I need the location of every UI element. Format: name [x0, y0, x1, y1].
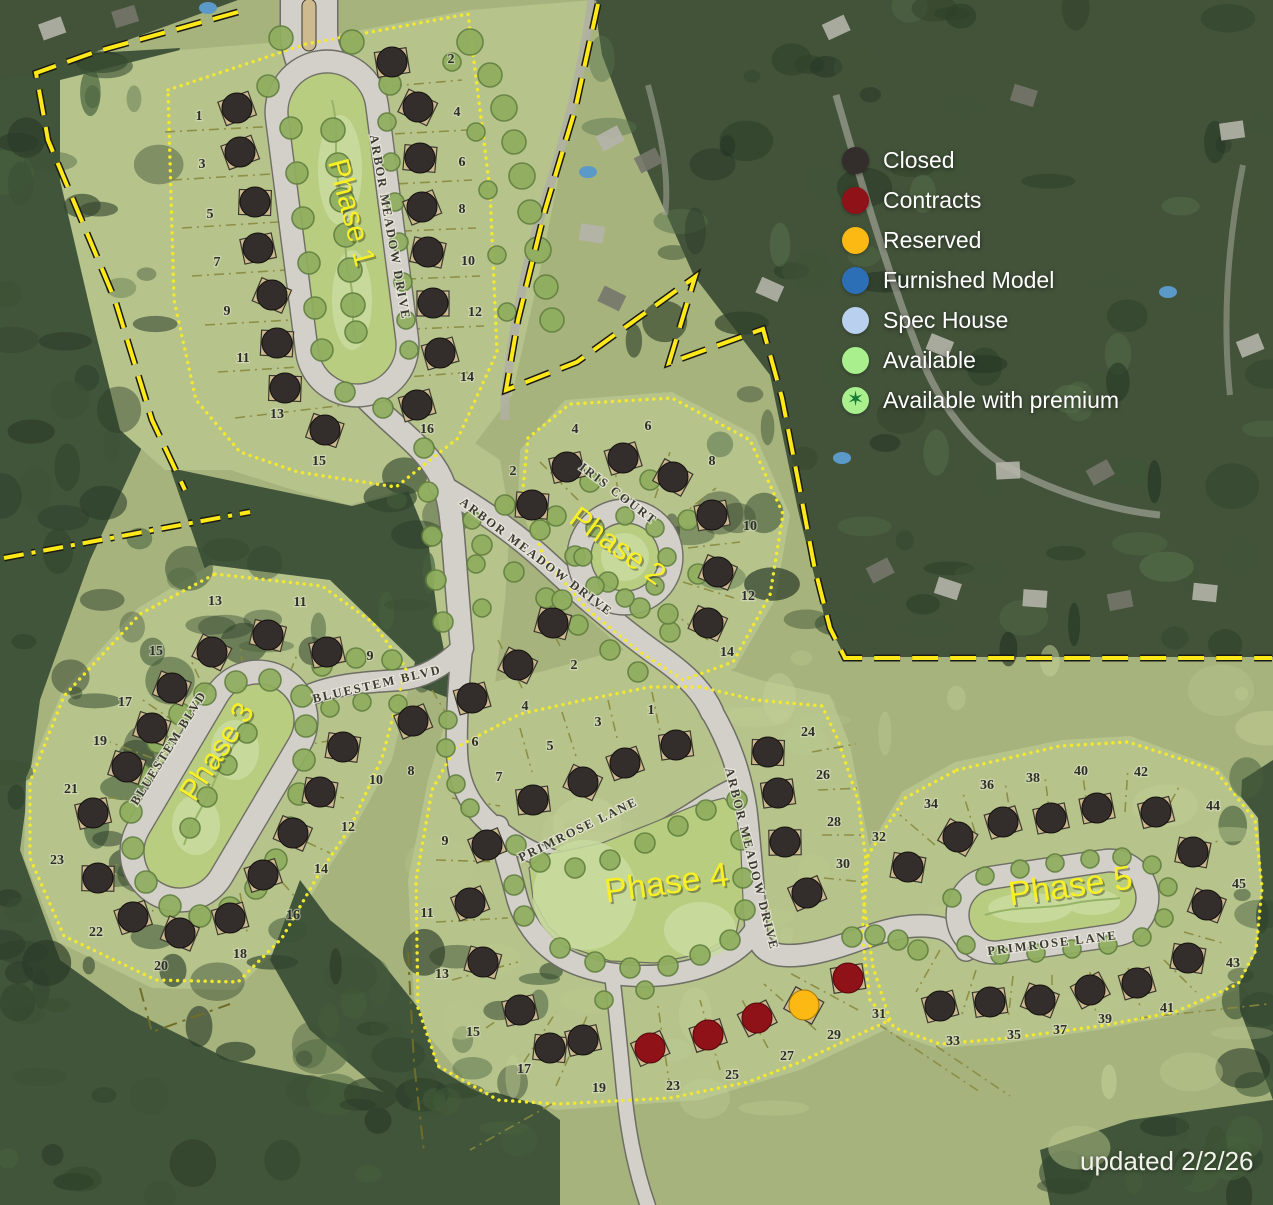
lot-status-dot — [278, 818, 308, 848]
lot-number: 15 — [312, 454, 326, 469]
texture-blob — [370, 1021, 404, 1037]
tree-icon — [382, 650, 402, 670]
tree-icon — [957, 936, 975, 954]
texture-blob — [1212, 285, 1255, 327]
lot-marker-p1-2 — [374, 47, 410, 77]
tree-icon — [574, 548, 592, 566]
lot-number: 23 — [666, 1079, 680, 1094]
lot-number: 10 — [369, 773, 383, 788]
lot-status-dot — [568, 767, 598, 797]
tree-icon — [1155, 909, 1173, 927]
texture-blob — [1160, 1052, 1223, 1091]
lot-number: 9 — [224, 304, 231, 319]
pool — [199, 2, 217, 14]
texture-blob — [12, 1068, 67, 1086]
legend: ClosedContractsReservedFurnished ModelSp… — [842, 147, 1119, 414]
lot-status-dot — [975, 987, 1005, 1017]
lot-status-dot — [1122, 968, 1152, 998]
lot-status-dot — [407, 192, 437, 222]
texture-blob — [1205, 463, 1259, 509]
lot-status-dot — [742, 1003, 772, 1033]
legend-item: Reserved — [842, 227, 1119, 254]
lot-status-dot — [248, 860, 278, 890]
lot-number: 20 — [154, 959, 168, 974]
tree-icon — [461, 799, 479, 817]
lot-marker-p2-2 — [515, 490, 549, 520]
lot-marker-p3-23 — [82, 863, 114, 893]
tree-icon — [908, 940, 928, 960]
lot-status-dot — [988, 807, 1018, 837]
status-dot-icon — [842, 267, 869, 294]
lot-number: 13 — [270, 407, 284, 422]
tree-icon — [293, 749, 315, 771]
texture-blob — [1046, 546, 1086, 561]
lot-status-dot — [157, 673, 187, 703]
texture-blob — [18, 468, 52, 512]
lot-number: 14 — [460, 370, 474, 385]
lot-status-dot — [608, 443, 638, 473]
tree-icon — [1159, 878, 1177, 896]
lot-number: 42 — [1134, 765, 1148, 780]
tree-icon — [502, 130, 526, 154]
tree-icon — [540, 308, 564, 332]
lot-number: 1 — [648, 703, 655, 718]
tree-icon — [400, 341, 418, 359]
lot-status-dot — [402, 390, 432, 420]
lot-status-dot — [405, 143, 435, 173]
lot-status-dot — [257, 280, 287, 310]
lot-number: 7 — [496, 770, 503, 785]
texture-blob — [744, 70, 761, 83]
texture-blob — [906, 594, 940, 615]
lot-status-dot — [305, 777, 335, 807]
texture-blob — [55, 444, 80, 491]
lot-status-dot — [1173, 943, 1203, 973]
lot-status-dot — [1075, 975, 1105, 1005]
lot-number: 11 — [236, 351, 249, 366]
lot-status-dot — [943, 822, 973, 852]
lot-marker-p5-44 — [1175, 837, 1211, 868]
tree-icon — [668, 816, 688, 836]
lot-status-dot — [222, 93, 252, 123]
texture-blob — [97, 386, 141, 433]
lot-status-dot — [310, 415, 340, 445]
lot-number: 32 — [872, 830, 886, 845]
texture-blob — [1201, 4, 1255, 32]
lot-status-dot — [789, 990, 819, 1020]
texture-blob — [658, 245, 689, 260]
lot-status-dot — [1192, 890, 1222, 920]
texture-blob — [371, 1037, 424, 1072]
texture-blob — [737, 386, 764, 402]
lot-status-dot — [535, 1033, 565, 1063]
texture-blob — [1101, 1064, 1116, 1099]
tree-icon — [439, 711, 457, 729]
legend-item-label: Available — [883, 347, 976, 374]
tree-icon — [518, 200, 542, 224]
legend-item-label: Furnished Model — [883, 267, 1054, 294]
tree-icon — [552, 590, 572, 610]
texture-blob — [0, 984, 35, 1022]
texture-blob — [387, 492, 407, 508]
lot-marker-p4-31 — [830, 963, 866, 993]
tree-icon — [291, 685, 313, 707]
aerial-house — [1219, 120, 1245, 140]
texture-blob — [44, 998, 71, 1012]
aerial-house — [1192, 583, 1218, 602]
tree-icon — [447, 775, 465, 793]
texture-blob — [1161, 626, 1188, 649]
tree-icon — [467, 123, 485, 141]
updated-date: updated 2/2/26 — [1080, 1146, 1254, 1177]
lot-number: 1 — [196, 109, 203, 124]
lot-status-dot — [472, 830, 502, 860]
lot-marker-p1-13 — [269, 373, 302, 403]
texture-blob — [1256, 899, 1268, 933]
texture-blob — [1112, 532, 1167, 555]
lot-marker-p4-28 — [769, 827, 801, 857]
lot-status-dot — [893, 852, 923, 882]
lot-number: 22 — [89, 925, 103, 940]
texture-blob — [739, 1101, 810, 1116]
tree-icon — [585, 952, 605, 972]
lot-number: 14 — [720, 645, 734, 660]
lot-number: 4 — [572, 422, 579, 437]
legend-item: Furnished Model — [842, 267, 1119, 294]
lot-status-dot — [78, 798, 108, 828]
lot-marker-p1-12 — [417, 288, 449, 318]
lot-number: 8 — [459, 202, 466, 217]
texture-blob — [83, 956, 95, 974]
tree-icon — [321, 118, 345, 142]
lot-marker-p4-26 — [760, 778, 795, 808]
texture-blob — [133, 316, 178, 332]
tree-icon — [842, 927, 862, 947]
lot-number: 43 — [1226, 956, 1240, 971]
texture-blob — [1211, 1027, 1273, 1040]
tree-icon — [467, 555, 485, 573]
texture-blob — [453, 1057, 493, 1080]
texture-blob — [1188, 293, 1213, 314]
lot-marker-p3-10 — [325, 732, 361, 762]
tree-icon — [426, 570, 446, 590]
tree-icon — [658, 604, 678, 624]
lot-status-dot — [610, 748, 640, 778]
texture-blob — [91, 1087, 116, 1103]
lot-number: 16 — [420, 422, 434, 437]
tree-icon — [565, 858, 585, 878]
texture-blob — [501, 1124, 537, 1157]
lot-status-dot — [1178, 837, 1208, 867]
legend-item: ✶Available with premium — [842, 387, 1119, 414]
tree-icon — [534, 275, 558, 299]
lot-marker-p4-1 — [658, 730, 693, 760]
tree-icon — [122, 837, 144, 859]
tree-icon — [473, 599, 491, 617]
lot-marker-p4-17 — [533, 1033, 567, 1063]
tree-icon — [257, 75, 279, 97]
texture-blob — [330, 948, 342, 985]
lot-number: 27 — [780, 1049, 794, 1064]
tree-icon — [660, 622, 680, 642]
lot-status-dot — [925, 991, 955, 1021]
lot-number: 36 — [980, 778, 994, 793]
legend-item-label: Closed — [883, 147, 955, 174]
texture-blob — [942, 96, 983, 115]
texture-blob — [5, 962, 34, 984]
legend-item: Contracts — [842, 187, 1119, 214]
lot-number: 17 — [118, 695, 132, 710]
lot-number: 41 — [1160, 1001, 1174, 1016]
star-glyph: ✶ — [847, 389, 865, 410]
tree-icon — [472, 535, 492, 555]
lot-number: 2 — [448, 52, 455, 67]
tree-icon — [378, 113, 396, 131]
lot-number: 37 — [1053, 1023, 1067, 1038]
texture-blob — [771, 43, 811, 75]
legend-item-label: Contracts — [883, 187, 981, 214]
tree-icon — [498, 303, 516, 321]
tree-icon — [495, 495, 515, 515]
tree-icon — [437, 739, 455, 757]
texture-blob — [216, 1042, 256, 1062]
texture-blob — [690, 148, 736, 180]
tree-icon — [690, 945, 710, 965]
tree-icon — [304, 297, 326, 319]
lot-number: 39 — [1098, 1012, 1112, 1027]
lot-status-dot — [505, 995, 535, 1025]
lot-status-dot — [661, 730, 691, 760]
tree-icon — [735, 900, 755, 920]
tree-icon — [341, 293, 365, 317]
tree-icon — [340, 30, 364, 54]
texture-blob — [781, 927, 794, 944]
texture-blob — [433, 1087, 461, 1114]
tree-icon — [335, 382, 355, 402]
lot-number: 38 — [1026, 771, 1040, 786]
tree-icon — [225, 671, 247, 693]
tree-icon — [616, 589, 634, 607]
lot-marker-p2-10 — [694, 500, 730, 531]
texture-blob — [186, 1006, 213, 1047]
texture-blob — [12, 634, 37, 649]
texture-blob — [815, 611, 865, 636]
texture-blob — [127, 85, 142, 112]
texture-blob — [378, 592, 394, 631]
lot-marker-p5-40 — [1079, 793, 1115, 824]
tree-icon — [269, 26, 293, 50]
tree-icon — [280, 117, 302, 139]
texture-blob — [365, 1107, 392, 1133]
tree-icon — [491, 95, 517, 121]
tree-icon — [345, 321, 367, 343]
texture-blob — [49, 381, 89, 419]
lot-status-dot — [538, 608, 568, 638]
tree-icon — [346, 648, 366, 668]
texture-blob — [119, 612, 145, 643]
texture-blob — [955, 563, 1011, 582]
texture-blob — [39, 332, 92, 350]
lot-status-dot — [398, 706, 428, 736]
tree-icon — [373, 398, 393, 418]
lot-status-dot — [468, 947, 498, 977]
texture-blob — [355, 1165, 382, 1183]
tree-icon — [1143, 856, 1161, 874]
pool — [579, 166, 597, 178]
legend-item: Spec House — [842, 307, 1119, 334]
lot-number: 9 — [442, 834, 449, 849]
lot-status-dot — [503, 650, 533, 680]
texture-blob — [62, 1167, 102, 1192]
texture-blob — [1227, 538, 1253, 577]
texture-blob — [837, 516, 891, 536]
lot-number: 24 — [801, 725, 815, 740]
tree-icon — [418, 482, 438, 502]
lot-status-dot — [1082, 793, 1112, 823]
tree-icon — [422, 526, 442, 546]
lot-number: 31 — [872, 1007, 886, 1022]
lot-number: 12 — [741, 589, 755, 604]
lot-status-dot — [693, 608, 723, 638]
lot-status-dot — [112, 752, 142, 782]
texture-blob — [80, 589, 125, 611]
tree-icon — [696, 800, 716, 820]
lot-number: 15 — [466, 1025, 480, 1040]
legend-item: Closed — [842, 147, 1119, 174]
tree-icon — [504, 875, 524, 895]
texture-blob — [1176, 1113, 1189, 1141]
lot-number: 2 — [571, 658, 578, 673]
lot-status-dot — [312, 637, 342, 667]
tree-icon — [530, 520, 550, 540]
lot-number: 18 — [233, 947, 247, 962]
texture-blob — [1229, 757, 1263, 798]
tree-icon — [259, 669, 281, 691]
lot-status-dot — [457, 683, 487, 713]
lot-number: 15 — [149, 644, 163, 659]
texture-blob — [134, 145, 184, 185]
tree-icon — [976, 867, 994, 885]
lot-number: 6 — [645, 419, 652, 434]
texture-blob — [870, 434, 901, 452]
lot-status-dot — [270, 373, 300, 403]
tree-icon — [943, 889, 961, 907]
tree-icon — [286, 162, 308, 184]
lot-number: 10 — [743, 519, 757, 534]
texture-blob — [42, 1144, 64, 1166]
lot-marker-p5-35 — [972, 987, 1008, 1017]
aerial-house — [1022, 589, 1047, 608]
lot-status-dot — [455, 888, 485, 918]
lot-number: 3 — [199, 157, 206, 172]
lot-status-dot — [635, 1033, 665, 1063]
texture-blob — [8, 419, 55, 443]
lot-number: 45 — [1232, 877, 1246, 892]
tree-icon — [550, 938, 570, 958]
tree-icon — [620, 958, 640, 978]
site-plan: 1234567891011121314151624681012149101112… — [0, 0, 1273, 1205]
lot-status-dot — [568, 1025, 598, 1055]
tree-icon — [504, 562, 524, 582]
tree-icon — [546, 506, 566, 526]
texture-blob — [859, 591, 885, 604]
lot-number: 14 — [314, 862, 328, 877]
lot-marker-p5-32 — [890, 852, 926, 883]
lot-status-dot — [770, 827, 800, 857]
tree-icon — [292, 207, 314, 229]
tree-icon — [865, 925, 885, 945]
tree-icon — [600, 640, 620, 660]
lot-marker-p3-12 — [302, 777, 338, 808]
pool — [1159, 286, 1177, 298]
lot-number: 2 — [510, 464, 517, 479]
lot-number: 26 — [816, 768, 830, 783]
lot-status-dot — [413, 237, 443, 267]
texture-blob — [878, 711, 891, 755]
lot-status-dot — [658, 462, 688, 492]
lot-number: 12 — [468, 305, 482, 320]
lot-status-dot — [518, 785, 548, 815]
lot-number: 33 — [946, 1034, 960, 1049]
lot-status-dot — [517, 490, 547, 520]
texture-blob — [1139, 552, 1193, 582]
lot-number: 7 — [214, 255, 221, 270]
texture-blob — [24, 152, 77, 172]
tree-icon — [159, 895, 181, 917]
tree-icon — [514, 906, 534, 926]
lot-status-dot — [240, 187, 270, 217]
lot-number: 13 — [435, 967, 449, 982]
lot-status-dot — [425, 338, 455, 368]
texture-blob — [4, 897, 37, 923]
tree-icon — [658, 956, 678, 976]
lot-status-dot — [697, 500, 727, 530]
texture-blob — [137, 267, 157, 280]
lot-status-dot — [703, 557, 733, 587]
lot-status-dot — [1025, 985, 1055, 1015]
lot-number: 5 — [547, 739, 554, 754]
lot-status-dot — [225, 137, 255, 167]
status-dot-icon — [842, 187, 869, 214]
texture-blob — [8, 784, 25, 809]
texture-blob — [791, 650, 813, 665]
lot-number: 5 — [207, 207, 214, 222]
lot-status-dot — [328, 732, 358, 762]
lot-marker-p1-6 — [403, 143, 437, 173]
lot-marker-p4-24 — [752, 737, 785, 767]
lot-status-dot — [1141, 797, 1171, 827]
texture-blob — [1068, 603, 1080, 647]
texture-blob — [1203, 827, 1256, 842]
lot-number: 19 — [93, 734, 107, 749]
tree-icon — [635, 833, 655, 853]
legend-item: Available — [842, 347, 1119, 374]
lot-status-dot — [197, 637, 227, 667]
lot-status-dot — [693, 1020, 723, 1050]
premium-star-icon: ✶ — [842, 387, 869, 414]
texture-blob — [1148, 460, 1161, 503]
status-dot-icon — [842, 307, 869, 334]
tree-icon — [888, 930, 908, 950]
texture-blob — [761, 409, 775, 445]
lot-status-dot — [262, 328, 292, 358]
lot-status-dot — [552, 452, 582, 482]
lot-status-dot — [83, 863, 113, 893]
lot-number: 6 — [472, 735, 479, 750]
texture-blob — [296, 1050, 312, 1066]
lot-number: 8 — [709, 454, 716, 469]
texture-blob — [1215, 1048, 1270, 1088]
